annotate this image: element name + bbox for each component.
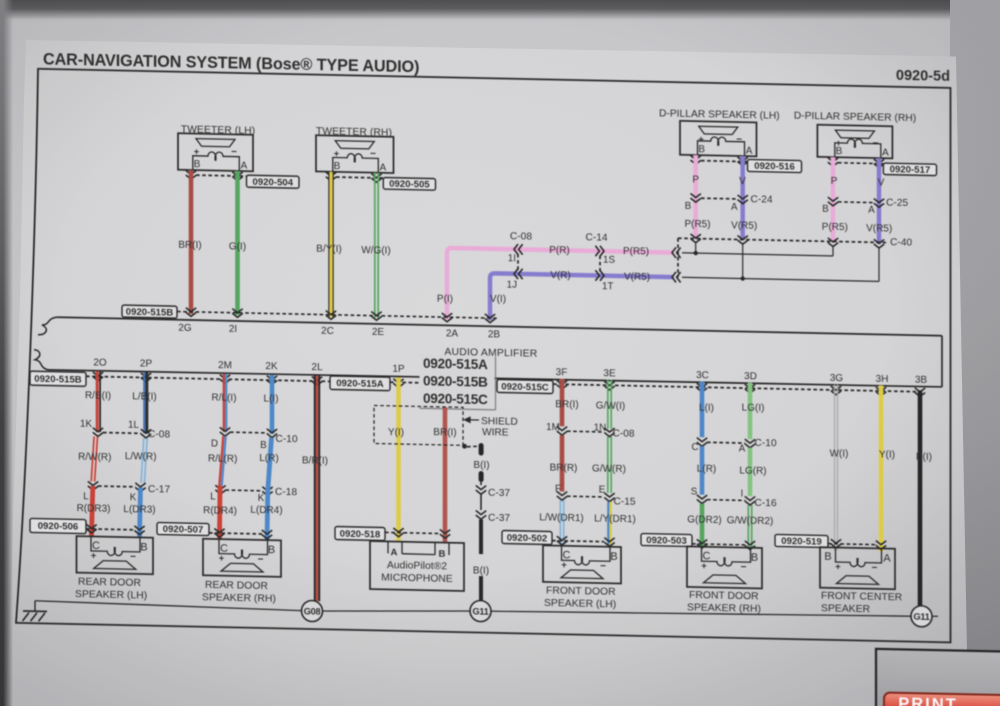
svg-text:L(R): L(R) (697, 464, 716, 475)
svg-text:BR(I): BR(I) (555, 399, 578, 410)
svg-text:R/L(R): R/L(R) (208, 453, 237, 465)
svg-text:R/B(I): R/B(I) (85, 390, 111, 402)
svg-text:1K: 1K (80, 419, 92, 430)
svg-text:C-18: C-18 (275, 487, 297, 498)
svg-text:C-37: C-37 (488, 488, 510, 499)
svg-text:0920-506: 0920-506 (38, 521, 79, 533)
svg-text:L(I): L(I) (699, 403, 714, 414)
svg-text:A: A (380, 162, 387, 173)
svg-text:0920-515C: 0920-515C (423, 391, 488, 407)
svg-text:D: D (211, 438, 218, 449)
svg-text:+: + (219, 553, 225, 564)
svg-text:R(DR4): R(DR4) (203, 505, 237, 517)
svg-text:REAR DOOR: REAR DOOR (78, 577, 141, 589)
svg-text:A: A (731, 202, 738, 213)
svg-text:L/Y(DR1): L/Y(DR1) (594, 513, 636, 525)
svg-text:P(R5): P(R5) (623, 246, 649, 258)
svg-text:V: V (739, 176, 746, 187)
svg-text:B: B (824, 551, 831, 563)
svg-text:V(R5): V(R5) (731, 220, 757, 232)
svg-text:L/B(I): L/B(I) (132, 391, 156, 403)
svg-text:2B: 2B (488, 329, 501, 340)
svg-text:0920-503: 0920-503 (646, 535, 687, 547)
svg-text:G08: G08 (304, 606, 321, 616)
svg-text:0920-518: 0920-518 (340, 529, 381, 541)
svg-text:FRONT DOOR: FRONT DOOR (689, 590, 759, 602)
svg-text:L(DR3): L(DR3) (123, 504, 155, 516)
svg-text:I: I (741, 488, 744, 499)
svg-text:A: A (882, 148, 889, 159)
svg-text:−: − (872, 563, 878, 574)
svg-text:A: A (883, 553, 891, 565)
svg-text:+: + (835, 561, 841, 572)
svg-text:C-37: C-37 (488, 513, 510, 524)
svg-text:LG(R): LG(R) (739, 465, 766, 477)
svg-text:WIRE: WIRE (482, 427, 509, 439)
svg-text:FRONT CENTER: FRONT CENTER (821, 591, 903, 604)
svg-text:C-25: C-25 (886, 198, 908, 209)
svg-text:BR(I): BR(I) (433, 427, 456, 438)
svg-text:+: + (561, 560, 567, 571)
svg-text:C-10: C-10 (276, 434, 298, 445)
svg-text:B: B (268, 544, 275, 556)
svg-text:R/W(R): R/W(R) (78, 451, 111, 463)
svg-text:L: L (83, 491, 89, 502)
svg-text:−: − (600, 561, 606, 572)
svg-text:0920-505: 0920-505 (389, 179, 430, 191)
svg-text:SHIELD: SHIELD (481, 416, 518, 428)
svg-text:0920-516: 0920-516 (754, 161, 795, 173)
svg-text:2M: 2M (218, 360, 232, 371)
svg-text:D-PILLAR SPEAKER (RH): D-PILLAR SPEAKER (RH) (794, 111, 916, 125)
svg-text:W(I): W(I) (830, 449, 849, 460)
svg-text:B: B (439, 549, 446, 560)
svg-text:V(I): V(I) (490, 294, 506, 305)
svg-text:Y(I): Y(I) (388, 427, 404, 438)
svg-text:0920-515A: 0920-515A (423, 356, 488, 372)
svg-text:BR(I): BR(I) (178, 240, 201, 251)
svg-text:L/W(DR1): L/W(DR1) (539, 512, 583, 524)
svg-text:2I: 2I (229, 324, 237, 335)
svg-text:V(R5): V(R5) (624, 271, 650, 283)
svg-text:0920-504: 0920-504 (252, 177, 293, 189)
svg-text:C-17: C-17 (148, 484, 170, 495)
svg-text:−: − (741, 562, 747, 573)
svg-text:B: B (610, 551, 617, 563)
svg-text:LG(I): LG(I) (742, 403, 765, 414)
svg-text:B(I): B(I) (916, 452, 932, 463)
svg-text:C-10: C-10 (755, 438, 777, 449)
svg-text:L: L (210, 491, 216, 502)
svg-text:P: P (692, 175, 699, 186)
svg-text:G/W(DR2): G/W(DR2) (727, 515, 774, 527)
svg-text:2O: 2O (93, 357, 107, 368)
svg-text:0920-515B: 0920-515B (423, 373, 488, 389)
svg-text:0920-515B: 0920-515B (34, 374, 82, 386)
svg-text:B: B (194, 159, 201, 170)
svg-text:B: B (836, 146, 843, 157)
svg-text:3F: 3F (556, 367, 568, 378)
svg-text:L(I): L(I) (264, 393, 279, 404)
svg-text:+: + (701, 561, 707, 572)
svg-text:3E: 3E (603, 368, 616, 379)
svg-text:−: − (258, 554, 264, 565)
svg-text:C-24: C-24 (751, 194, 773, 205)
svg-text:0920-502: 0920-502 (507, 533, 548, 545)
svg-text:W/G(I): W/G(I) (361, 245, 390, 257)
svg-text:SPEAKER: SPEAKER (821, 603, 871, 615)
svg-text:C-40: C-40 (890, 237, 912, 248)
svg-text:P: P (831, 176, 838, 187)
svg-text:D-PILLAR SPEAKER (LH): D-PILLAR SPEAKER (LH) (659, 108, 780, 122)
svg-text:L/W(R): L/W(R) (125, 451, 157, 463)
svg-text:P(R5): P(R5) (684, 219, 710, 231)
svg-text:0920-5d: 0920-5d (896, 68, 950, 85)
svg-text:L(R): L(R) (259, 453, 278, 464)
svg-text:2L: 2L (311, 362, 323, 373)
svg-text:A: A (391, 547, 398, 558)
svg-text:G11: G11 (472, 606, 488, 616)
svg-text:A: A (739, 443, 746, 454)
svg-text:G11: G11 (913, 612, 929, 622)
svg-text:SPEAKER (LH): SPEAKER (LH) (75, 589, 147, 602)
svg-text:B: B (140, 541, 147, 553)
svg-text:Y(I): Y(I) (879, 450, 895, 461)
svg-text:2P: 2P (140, 358, 153, 369)
svg-text:2A: 2A (446, 328, 459, 339)
svg-text:1L: 1L (128, 420, 139, 431)
svg-text:G/W(R): G/W(R) (592, 463, 626, 475)
svg-text:B: B (260, 440, 267, 451)
svg-text:C-08: C-08 (613, 428, 635, 439)
svg-text:V(R): V(R) (550, 270, 571, 281)
svg-text:R/L(I): R/L(I) (212, 392, 237, 404)
svg-text:1P: 1P (392, 364, 405, 375)
svg-text:3G: 3G (830, 373, 844, 384)
svg-text:0920-517: 0920-517 (890, 164, 931, 176)
svg-text:C-14: C-14 (585, 232, 607, 243)
svg-text:G(I): G(I) (229, 241, 246, 252)
svg-text:REAR DOOR: REAR DOOR (205, 580, 268, 592)
svg-text:2K: 2K (265, 361, 278, 372)
svg-text:AudioPilot®2: AudioPilot®2 (387, 560, 447, 572)
svg-text:B: B (751, 552, 758, 564)
svg-text:C: C (691, 442, 698, 453)
svg-text:V(R5): V(R5) (866, 223, 892, 235)
svg-text:G/W(I): G/W(I) (596, 401, 625, 413)
svg-text:B(I): B(I) (473, 565, 489, 576)
svg-text:B: B (698, 144, 705, 155)
svg-text:C-08: C-08 (510, 231, 532, 242)
svg-text:P(R5): P(R5) (822, 222, 848, 234)
svg-text:2C: 2C (321, 326, 334, 337)
svg-text:2E: 2E (372, 327, 385, 338)
svg-text:2G: 2G (178, 323, 192, 334)
svg-text:G(DR2): G(DR2) (687, 514, 721, 526)
svg-text:0920-515A: 0920-515A (336, 378, 384, 390)
svg-text:0920-507: 0920-507 (163, 524, 204, 536)
svg-text:B(I): B(I) (473, 460, 489, 471)
svg-text:P(I): P(I) (437, 294, 453, 305)
svg-text:0920-519: 0920-519 (781, 536, 822, 548)
svg-text:PRINT: PRINT (898, 695, 958, 706)
svg-text:C-16: C-16 (755, 498, 777, 509)
svg-text:K: K (130, 492, 137, 503)
svg-text:1T: 1T (602, 281, 613, 292)
svg-text:C-15: C-15 (613, 496, 635, 507)
svg-text:3B: 3B (915, 375, 928, 386)
svg-text:MICROPHONE: MICROPHONE (381, 572, 453, 584)
svg-text:SPEAKER (RH): SPEAKER (RH) (202, 592, 276, 605)
svg-text:−: − (736, 135, 742, 146)
svg-text:B: B (685, 201, 692, 212)
svg-text:A: A (868, 204, 875, 215)
svg-text:3D: 3D (744, 371, 757, 382)
svg-text:A: A (746, 146, 753, 157)
svg-text:P(R): P(R) (549, 245, 570, 256)
svg-text:1I: 1I (508, 253, 516, 264)
svg-text:K: K (258, 493, 265, 504)
svg-text:1S: 1S (603, 255, 615, 266)
svg-text:C-08: C-08 (148, 429, 170, 440)
svg-text:B: B (822, 204, 829, 215)
svg-text:FRONT DOOR: FRONT DOOR (546, 585, 616, 597)
svg-text:1J: 1J (507, 280, 517, 291)
svg-text:B: B (334, 161, 341, 172)
svg-text:L(DR4): L(DR4) (250, 505, 282, 517)
svg-text:V: V (878, 177, 885, 188)
svg-text:0920-515C: 0920-515C (501, 381, 549, 393)
svg-text:−: − (130, 552, 136, 563)
svg-text:3C: 3C (696, 370, 709, 381)
svg-text:R(DR3): R(DR3) (77, 503, 111, 515)
svg-text:+: + (91, 550, 97, 561)
svg-text:BR(R): BR(R) (550, 462, 578, 474)
svg-text:B/R(I): B/R(I) (302, 455, 328, 467)
svg-text:A: A (241, 161, 248, 172)
svg-text:0920-515B: 0920-515B (126, 307, 174, 319)
svg-text:SPEAKER (LH): SPEAKER (LH) (544, 598, 616, 611)
svg-text:B/Y(I): B/Y(I) (316, 244, 342, 256)
svg-text:3H: 3H (876, 374, 889, 385)
